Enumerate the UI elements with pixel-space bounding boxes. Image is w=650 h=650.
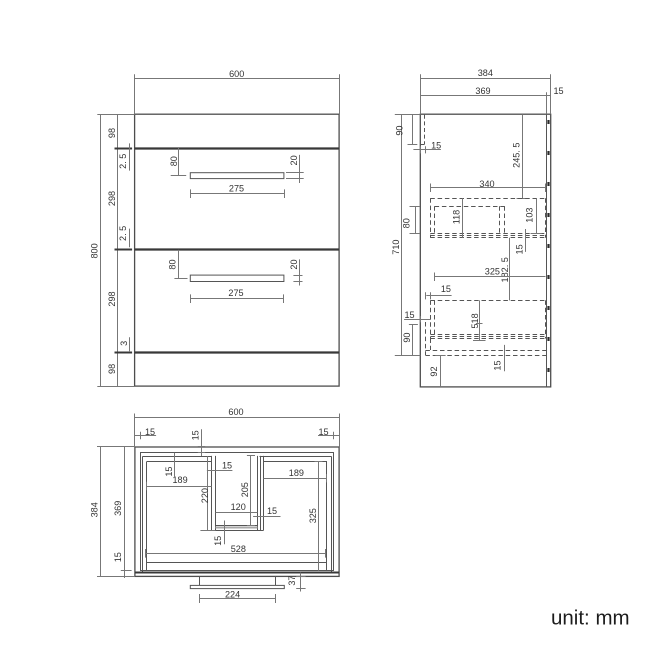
svg-text:205: 205 [240, 482, 250, 497]
svg-text:15: 15 [318, 427, 328, 437]
svg-text:15: 15 [222, 461, 232, 471]
svg-text:90: 90 [395, 126, 405, 136]
svg-text:340: 340 [479, 179, 494, 189]
svg-text:189: 189 [173, 475, 188, 485]
svg-text:245. 5: 245. 5 [512, 143, 522, 168]
svg-text:800: 800 [90, 243, 100, 258]
svg-text:80: 80 [401, 218, 411, 228]
svg-text:275: 275 [228, 288, 243, 298]
svg-text:98: 98 [107, 128, 117, 138]
svg-text:275: 275 [229, 184, 244, 194]
svg-text:600: 600 [229, 69, 244, 79]
svg-text:20: 20 [289, 259, 299, 269]
svg-text:325: 325 [308, 508, 318, 523]
svg-text:189: 189 [289, 468, 304, 478]
svg-text:224: 224 [225, 589, 240, 599]
svg-text:3: 3 [119, 341, 129, 346]
svg-text:37: 37 [287, 576, 297, 586]
svg-text:15: 15 [431, 140, 441, 150]
svg-text:15: 15 [213, 536, 223, 546]
svg-text:90: 90 [402, 333, 412, 343]
svg-text:298: 298 [107, 191, 117, 206]
svg-text:103: 103 [525, 208, 535, 223]
svg-text:369: 369 [475, 86, 490, 96]
svg-text:80: 80 [169, 156, 179, 166]
svg-text:15: 15 [191, 430, 201, 440]
svg-text:710: 710 [391, 240, 401, 255]
svg-text:15: 15 [493, 360, 503, 370]
svg-text:182. 5: 182. 5 [500, 257, 510, 282]
svg-text:120: 120 [231, 502, 246, 512]
svg-text:15: 15 [113, 552, 123, 562]
svg-text:325: 325 [485, 267, 500, 277]
svg-text:384: 384 [90, 502, 100, 517]
svg-text:15: 15 [145, 427, 155, 437]
svg-text:518: 518 [470, 313, 480, 328]
svg-text:528: 528 [231, 544, 246, 554]
svg-text:92: 92 [429, 366, 439, 376]
svg-text:15: 15 [553, 86, 563, 96]
svg-text:98: 98 [107, 364, 117, 374]
svg-text:80: 80 [168, 259, 178, 269]
svg-text:600: 600 [228, 407, 243, 417]
svg-text:15: 15 [404, 310, 414, 320]
svg-text:15: 15 [514, 244, 524, 254]
svg-text:384: 384 [478, 68, 493, 78]
svg-text:15: 15 [441, 284, 451, 294]
svg-text:unit: mm: unit: mm [551, 607, 630, 630]
svg-text:118: 118 [451, 210, 461, 225]
svg-text:15: 15 [267, 506, 277, 516]
svg-text:298: 298 [107, 291, 117, 306]
svg-text:2. 5: 2. 5 [118, 154, 128, 169]
svg-text:2. 5: 2. 5 [118, 226, 128, 241]
svg-text:220: 220 [200, 488, 210, 503]
svg-text:369: 369 [113, 501, 123, 516]
svg-text:20: 20 [289, 155, 299, 165]
